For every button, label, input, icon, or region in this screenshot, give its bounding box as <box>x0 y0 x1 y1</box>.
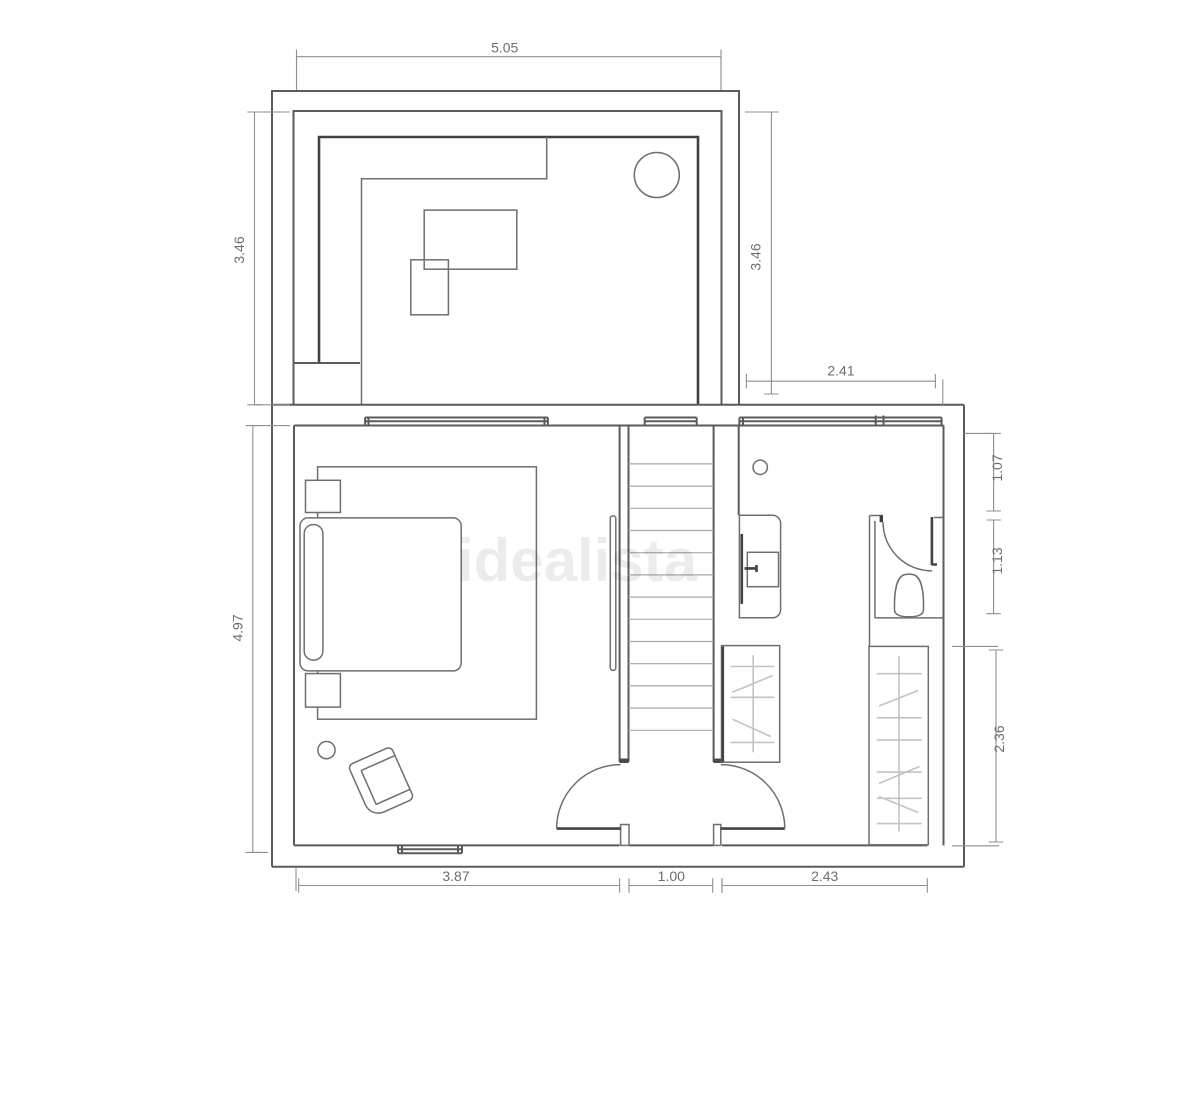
svg-text:1.07: 1.07 <box>989 454 1005 481</box>
svg-text:idealista: idealista <box>457 527 698 594</box>
svg-text:2.41: 2.41 <box>827 363 854 379</box>
svg-text:3.46: 3.46 <box>748 243 764 270</box>
svg-text:2.43: 2.43 <box>811 868 838 884</box>
svg-text:3.46: 3.46 <box>231 236 247 263</box>
svg-text:4.97: 4.97 <box>230 614 246 641</box>
svg-text:1.13: 1.13 <box>989 547 1005 574</box>
svg-text:2.36: 2.36 <box>991 725 1007 752</box>
svg-text:5.05: 5.05 <box>491 40 518 56</box>
svg-text:3.87: 3.87 <box>442 868 469 884</box>
svg-text:1.00: 1.00 <box>658 868 685 884</box>
